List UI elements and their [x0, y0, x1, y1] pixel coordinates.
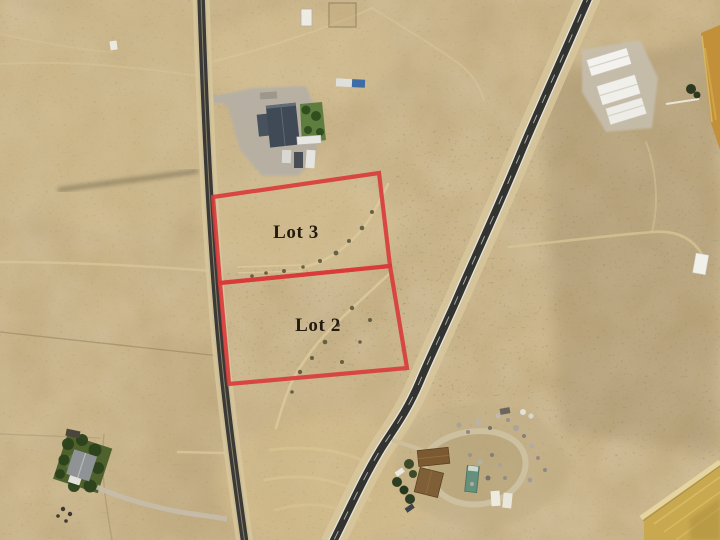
white-trailer: [297, 135, 321, 145]
tree: [686, 84, 696, 94]
aerial-photo-canvas: Lot 3 Lot 2: [0, 0, 720, 540]
small-white-structure: [109, 40, 117, 50]
truck-trailer-white: [336, 78, 352, 87]
gray-trailer: [260, 91, 277, 99]
fenced-pen: [329, 3, 356, 27]
rv: [305, 150, 315, 169]
lot2-label: Lot 2: [295, 315, 341, 336]
driveway-entrance: [214, 98, 250, 99]
lot3-label: Lot 3: [273, 222, 319, 243]
teal-shed: [465, 465, 480, 492]
white-trailer-farm-1: [491, 491, 501, 507]
aerial-lot-photo: Lot 3 Lot 2: [0, 0, 720, 540]
semi-truck: [336, 78, 365, 88]
truck-cab-blue: [352, 79, 365, 88]
white-shed: [301, 9, 312, 26]
dark-van: [294, 152, 303, 168]
white-trailer-farm-2: [502, 493, 513, 509]
barn-brown-1: [417, 447, 450, 466]
tree: [694, 92, 701, 99]
shed: [282, 150, 291, 163]
track-southwest: [178, 452, 224, 453]
